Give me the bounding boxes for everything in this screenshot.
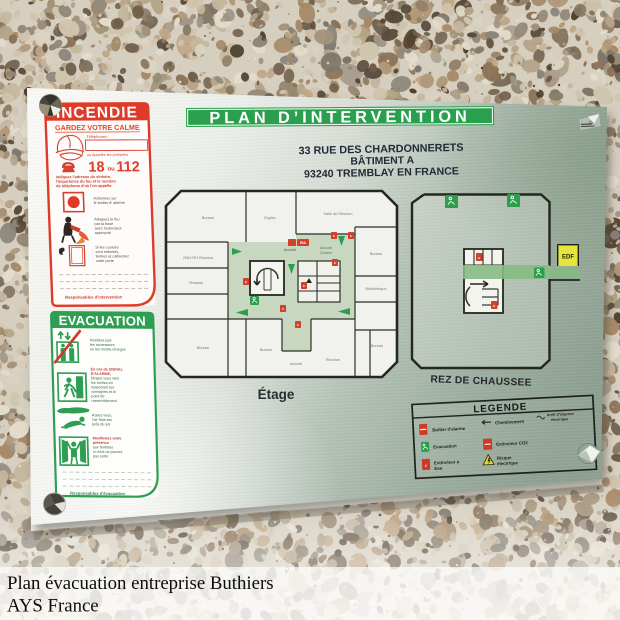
svg-text:E: E	[303, 284, 305, 288]
svg-text:Cuisine: Cuisine	[320, 251, 333, 255]
svg-text:GARDEZ VOTRE CALME: GARDEZ VOTRE CALME	[55, 123, 140, 132]
svg-text:E: E	[282, 307, 284, 311]
svg-text:approprié: approprié	[95, 231, 111, 235]
svg-text:Duplex: Duplex	[264, 216, 276, 220]
svg-text:Attaquez le feu: Attaquez le feu	[94, 217, 119, 221]
svg-text:Salle de Réunion: Salle de Réunion	[324, 212, 353, 216]
svg-text:E: E	[425, 464, 427, 468]
svg-text:de téléphone d'où l'on appelle: de téléphone d'où l'on appelle	[56, 183, 112, 188]
svg-text:E: E	[245, 280, 247, 284]
svg-text:rassemblement: rassemblement	[91, 399, 116, 403]
svg-text:Bureau: Bureau	[260, 348, 272, 352]
svg-text:Eau: Eau	[434, 466, 443, 471]
svg-text:pas sortir: pas sortir	[93, 454, 109, 458]
svg-text:AYS France: AYS France	[7, 596, 99, 617]
svg-text:E: E	[350, 234, 352, 238]
svg-text:Réunion: Réunion	[326, 358, 340, 362]
svg-text:INCENDIE: INCENDIE	[56, 104, 139, 121]
svg-text:sont enfumés,: sont enfumés,	[95, 250, 119, 254]
svg-text:Actionnez sur: Actionnez sur	[93, 196, 117, 200]
svg-text:112: 112	[116, 159, 140, 175]
svg-text:Plan évacuation entreprise But: Plan évacuation entreprise Buthiers	[7, 573, 274, 594]
svg-text:Étage: Étage	[258, 387, 295, 402]
svg-text:Responsables d'évacuation: Responsables d'évacuation	[70, 491, 126, 496]
svg-text:point de: point de	[91, 394, 104, 398]
svg-text:Accueil: Accueil	[320, 246, 332, 250]
svg-text:2064 RH Réunion: 2064 RH Réunion	[183, 256, 213, 260]
svg-text:EDF: EDF	[562, 255, 574, 261]
svg-text:E: E	[493, 304, 495, 308]
svg-text:présence: présence	[93, 441, 109, 445]
svg-text:avec l'extincteur: avec l'extincteur	[95, 226, 123, 230]
svg-text:Téléphonez :: Téléphonez :	[86, 134, 109, 139]
svg-text:Accueil: Accueil	[290, 362, 302, 366]
svg-text:votre porte: votre porte	[96, 259, 114, 263]
svg-text:par la base: par la base	[94, 222, 113, 226]
svg-text:ou: ou	[107, 166, 115, 172]
svg-text:Bureau: Bureau	[370, 252, 382, 256]
svg-text:E: E	[334, 261, 336, 265]
svg-text:Bureau: Bureau	[371, 344, 383, 348]
svg-text:RIA: RIA	[300, 241, 306, 245]
svg-text:Bureau: Bureau	[202, 216, 214, 220]
svg-text:Bureau: Bureau	[197, 346, 209, 350]
svg-text:Bibliothèque: Bibliothèque	[366, 287, 387, 291]
svg-text:Terrasse: Terrasse	[189, 281, 204, 285]
svg-text:fermez et calfeutrez: fermez et calfeutrez	[96, 254, 130, 258]
svg-text:Si les couloirs: Si les couloirs	[95, 245, 119, 249]
svg-text:EVACUATION: EVACUATION	[58, 313, 146, 329]
svg-text:Responsables d'intervention: Responsables d'intervention	[65, 294, 123, 299]
svg-text:le boîtier d' alarme: le boîtier d' alarme	[94, 201, 125, 205]
svg-text:Accueil: Accueil	[284, 248, 296, 252]
svg-text:PLAN D’INTERVENTION: PLAN D’INTERVENTION	[209, 108, 471, 128]
svg-text:près du sol: près du sol	[92, 422, 110, 426]
svg-text:ou Appelez les pompiers: ou Appelez les pompiers	[87, 153, 129, 157]
svg-text:E: E	[297, 323, 299, 327]
svg-text:E: E	[333, 234, 335, 238]
svg-text:E: E	[478, 256, 480, 260]
svg-text:ou les monte-charges: ou les monte-charges	[90, 347, 126, 351]
